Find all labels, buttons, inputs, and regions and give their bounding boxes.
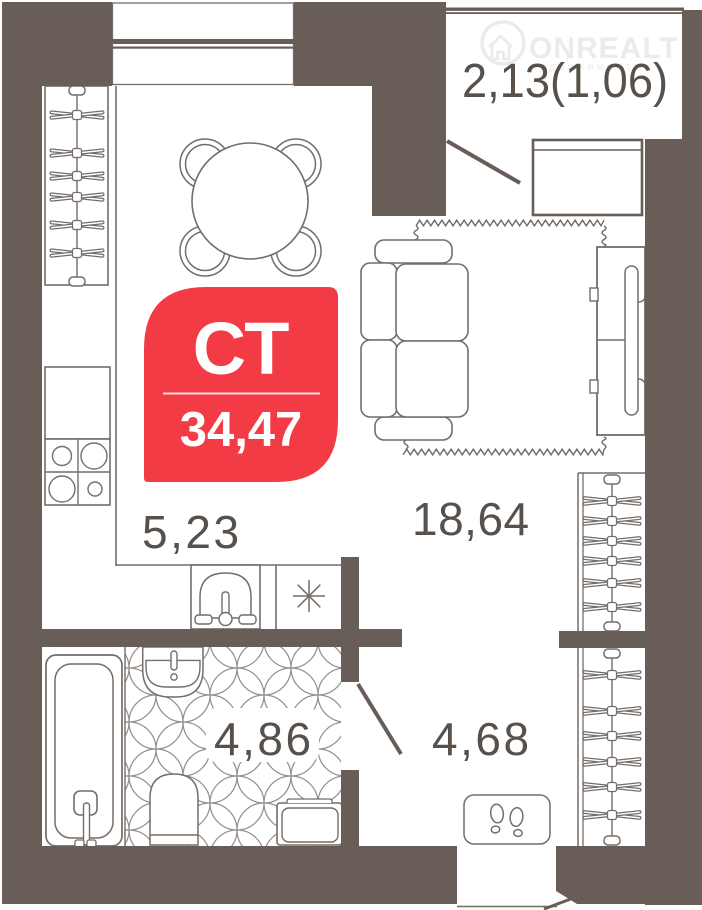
svg-text:18,64: 18,64 bbox=[412, 493, 530, 545]
svg-text:2,13(1,06): 2,13(1,06) bbox=[462, 55, 668, 108]
svg-text:34,47: 34,47 bbox=[180, 403, 303, 457]
svg-text:5,23: 5,23 bbox=[142, 506, 242, 558]
svg-text:4,68: 4,68 bbox=[432, 713, 532, 765]
svg-text:4,86: 4,86 bbox=[214, 713, 314, 765]
svg-text:СТ: СТ bbox=[193, 307, 290, 390]
